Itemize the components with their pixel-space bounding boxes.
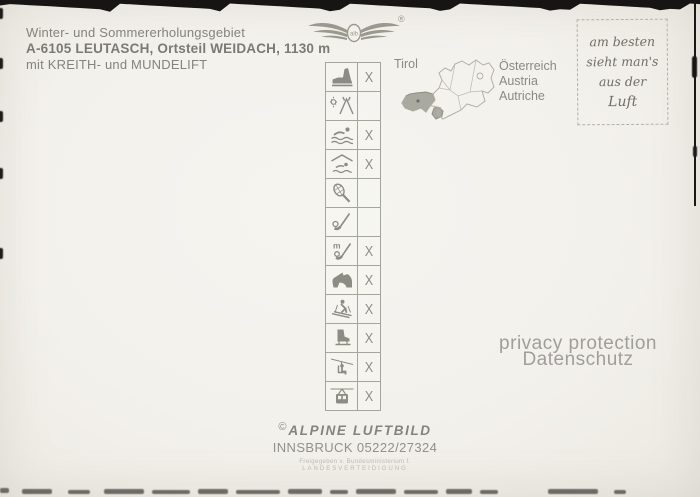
activity-row [326, 92, 380, 121]
country-label-fr: Autriche [499, 89, 557, 104]
scan-left-mark [0, 111, 3, 122]
minigolf-icon: m [326, 237, 358, 265]
activity-check-mark [360, 179, 379, 207]
logo-monogram: alb [350, 32, 359, 38]
activity-row: X [326, 121, 380, 150]
activity-check-mark: X [360, 150, 379, 178]
activity-row [326, 208, 380, 237]
copyright-icon: © [278, 421, 286, 433]
indoor-pool-icon [326, 150, 358, 178]
clearance-line1: Freigegeben v. Bundesministerium f. [255, 459, 455, 465]
publisher-city-phone: INNSBRUCK 05222/27324 [255, 440, 455, 455]
header-line3: mit KREITH- und MUNDELIFT [26, 57, 330, 73]
activity-row: mX [326, 237, 380, 266]
austria-map-icon [398, 56, 496, 126]
scan-right-mark [692, 56, 697, 78]
country-label-en: Austria [499, 74, 557, 89]
activity-check-mark: X [360, 63, 379, 91]
vienna-marker [477, 73, 483, 79]
state-borders [439, 60, 482, 110]
activity-check-mark: X [360, 353, 379, 381]
scan-left-mark [0, 168, 3, 179]
hiking-boot-icon [326, 63, 358, 91]
skiing-icon [326, 295, 358, 323]
ice-skating-icon [326, 324, 358, 352]
publisher-name: ALPINE LUFTBILD [288, 423, 431, 438]
scan-left-mark [0, 8, 3, 19]
activity-row: X [326, 382, 380, 410]
map-country-labels: Österreich Austria Autriche [499, 59, 557, 104]
publisher-line: © ALPINE LUFTBILD [255, 423, 455, 438]
country-label-de: Österreich [499, 59, 557, 74]
leutasch-location-dot [416, 99, 419, 102]
scan-left-mark [0, 248, 3, 259]
chairlift-icon [326, 353, 358, 381]
activity-check-mark: X [360, 121, 379, 149]
activity-check-mark: X [360, 266, 379, 294]
stamp-box: am besten sieht man's aus der Luft [577, 19, 669, 126]
slogan-line: sieht man's [586, 52, 658, 73]
scan-top-edge [0, 0, 700, 14]
header-line1: Winter- und Sommererholungsgebiet [26, 25, 330, 41]
clearance-line2: LANDESVERTEIDIGUNG [255, 466, 455, 472]
registered-trademark: ® [398, 14, 405, 24]
scan-right-edge [694, 0, 696, 206]
privacy-watermark: privacy protection Datenschutz [478, 336, 678, 368]
svg-text:m: m [333, 241, 341, 251]
activity-check-mark: X [360, 324, 379, 352]
activity-row [326, 179, 380, 208]
activity-row: X [326, 266, 380, 295]
activity-row: X [326, 353, 380, 382]
activities-table: XXXmXXXXXX [325, 62, 381, 411]
activity-check-mark: X [360, 237, 379, 265]
publisher-credit: © ALPINE LUFTBILD INNSBRUCK 05222/27324 … [255, 423, 455, 472]
scan-bottom-marks [0, 483, 700, 495]
activity-row: X [326, 324, 380, 353]
activity-row: X [326, 295, 380, 324]
activity-check-mark: X [360, 295, 379, 323]
slogan-line: am besten [589, 32, 655, 52]
header-line2: A-6105 LEUTASCH, Ortsteil WEIDACH, 1130 … [26, 41, 330, 57]
scan-left-mark [0, 58, 3, 69]
activity-check-mark: X [360, 382, 379, 410]
postcard-back: Winter- und Sommererholungsgebiet A-6105… [0, 0, 700, 497]
activity-row: X [326, 63, 380, 92]
header-text: Winter- und Sommererholungsgebiet A-6105… [26, 25, 330, 73]
watermark-line2: Datenschutz [478, 352, 678, 368]
activity-check-mark [360, 92, 379, 120]
slogan-line: aus der [599, 72, 646, 92]
activity-row: X [326, 150, 380, 179]
golf-icon [326, 208, 358, 236]
horse-riding-icon [326, 266, 358, 294]
scan-right-mark [693, 146, 697, 157]
tennis-icon [326, 179, 358, 207]
activity-check-mark [360, 208, 379, 236]
camping-tent-icon [326, 92, 358, 120]
alpine-luftbild-logo: alb ® [306, 18, 402, 48]
cable-car-icon [326, 382, 358, 410]
slogan-line: Luft [608, 92, 637, 112]
wings-icon: alb [306, 18, 402, 48]
swimming-icon [326, 121, 358, 149]
